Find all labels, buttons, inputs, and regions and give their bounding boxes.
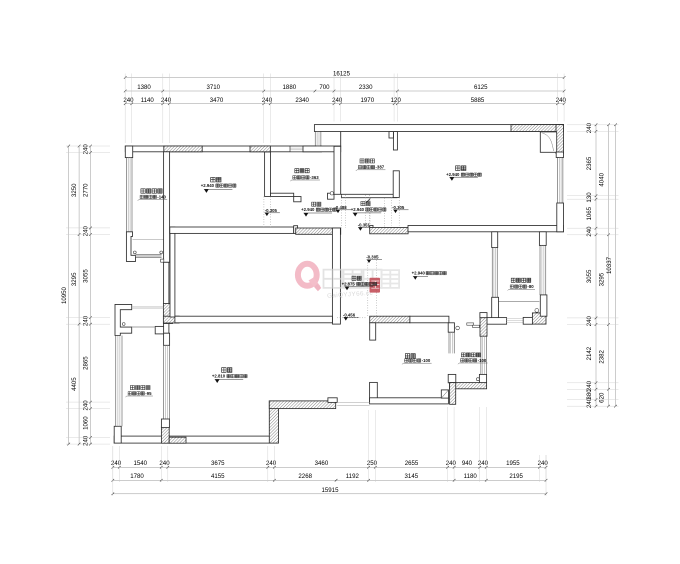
svg-text:1180: 1180 xyxy=(464,473,478,480)
svg-text:2195: 2195 xyxy=(509,473,523,480)
svg-text:240: 240 xyxy=(556,97,567,104)
svg-text:+2.940: +2.940 xyxy=(201,183,215,188)
svg-text:10337: 10337 xyxy=(606,256,613,274)
svg-text:2382: 2382 xyxy=(599,349,606,363)
svg-text:3295: 3295 xyxy=(599,272,606,286)
svg-text:2770: 2770 xyxy=(83,183,90,197)
svg-text:1380: 1380 xyxy=(137,84,151,91)
svg-text:3470: 3470 xyxy=(210,97,224,104)
svg-text:-140: -140 xyxy=(157,194,166,199)
svg-text:2865: 2865 xyxy=(83,356,90,370)
svg-text:3710: 3710 xyxy=(206,84,220,91)
svg-text:-80: -80 xyxy=(527,284,534,289)
svg-text:240: 240 xyxy=(332,97,343,104)
svg-text:130: 130 xyxy=(586,192,593,203)
svg-text:1780: 1780 xyxy=(130,473,144,480)
svg-text:940: 940 xyxy=(462,460,473,467)
svg-text:-0.305: -0.305 xyxy=(265,208,278,213)
svg-text:-387: -387 xyxy=(376,165,385,170)
svg-text:3055: 3055 xyxy=(83,269,90,283)
svg-text:6125: 6125 xyxy=(474,84,488,91)
svg-text:-0.305: -0.305 xyxy=(392,205,405,210)
svg-text:240: 240 xyxy=(159,460,170,467)
svg-text:1140: 1140 xyxy=(141,97,155,104)
svg-text:-0.305: -0.305 xyxy=(366,255,379,260)
svg-text:4040: 4040 xyxy=(599,172,606,186)
svg-text:-0.351: -0.351 xyxy=(358,222,371,227)
svg-text:1060: 1060 xyxy=(83,416,90,430)
svg-text:240: 240 xyxy=(538,460,549,467)
svg-text:10950: 10950 xyxy=(61,286,68,304)
svg-text:3055: 3055 xyxy=(586,269,593,283)
svg-text:-95: -95 xyxy=(145,391,152,396)
svg-text:2340: 2340 xyxy=(295,97,309,104)
svg-text:16125: 16125 xyxy=(333,71,351,78)
svg-text:1880: 1880 xyxy=(283,84,297,91)
svg-text:-0.456: -0.456 xyxy=(343,312,356,317)
svg-text:3250: 3250 xyxy=(71,183,78,197)
svg-text:620: 620 xyxy=(599,392,606,403)
svg-text:+2.810: +2.810 xyxy=(212,374,226,379)
svg-text:5885: 5885 xyxy=(471,97,485,104)
svg-text:2330: 2330 xyxy=(359,84,373,91)
svg-text:3675: 3675 xyxy=(211,460,225,467)
svg-text:+2.940: +2.940 xyxy=(351,207,365,212)
svg-text:15915: 15915 xyxy=(322,487,340,494)
svg-text:240: 240 xyxy=(586,122,593,133)
svg-text:+2.940: +2.940 xyxy=(301,207,315,212)
svg-text:4405: 4405 xyxy=(71,377,78,391)
svg-text:1955: 1955 xyxy=(506,460,520,467)
svg-text:1065: 1065 xyxy=(586,206,593,220)
svg-text:3295: 3295 xyxy=(71,272,78,286)
svg-text:1540: 1540 xyxy=(134,460,148,467)
svg-text:2365: 2365 xyxy=(586,156,593,170)
svg-text:-100: -100 xyxy=(422,358,431,363)
svg-text:2142: 2142 xyxy=(586,346,593,360)
svg-text:3460: 3460 xyxy=(315,460,329,467)
svg-text:240: 240 xyxy=(83,144,90,155)
svg-text:120: 120 xyxy=(391,97,402,104)
svg-text:2268: 2268 xyxy=(298,473,312,480)
svg-text:3145: 3145 xyxy=(405,473,419,480)
svg-text:700: 700 xyxy=(319,84,330,91)
svg-text:1192: 1192 xyxy=(346,473,360,480)
svg-text:-363: -363 xyxy=(310,175,319,180)
svg-text:240: 240 xyxy=(123,97,134,104)
svg-text:2655: 2655 xyxy=(405,460,419,467)
svg-text:240: 240 xyxy=(161,97,172,104)
svg-text:-100: -100 xyxy=(478,358,487,363)
svg-text:+2.940: +2.940 xyxy=(446,172,460,177)
svg-text:+2.940: +2.940 xyxy=(412,271,426,276)
svg-text:4155: 4155 xyxy=(211,473,225,480)
svg-text:1970: 1970 xyxy=(361,97,375,104)
svg-text:-0.488: -0.488 xyxy=(335,205,348,210)
svg-text:240: 240 xyxy=(111,460,122,467)
svg-text:+2.875: +2.875 xyxy=(342,282,356,287)
